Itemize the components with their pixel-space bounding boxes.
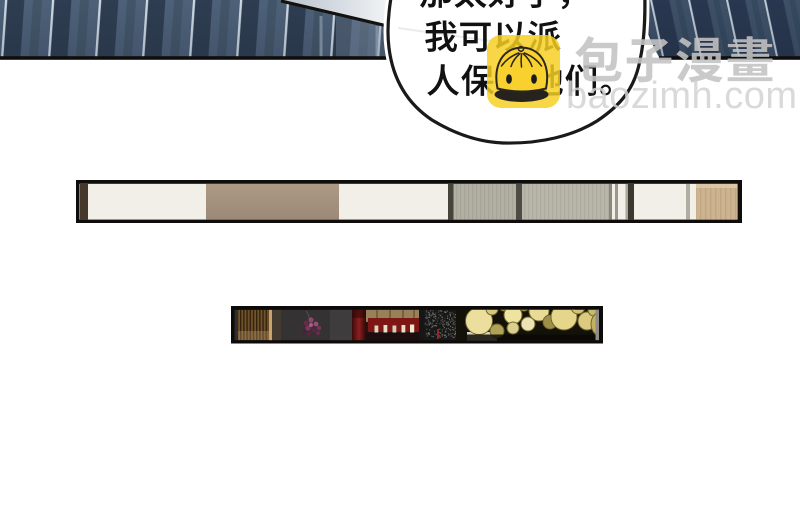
svg-text:baozimh.com: baozimh.com xyxy=(566,75,797,117)
